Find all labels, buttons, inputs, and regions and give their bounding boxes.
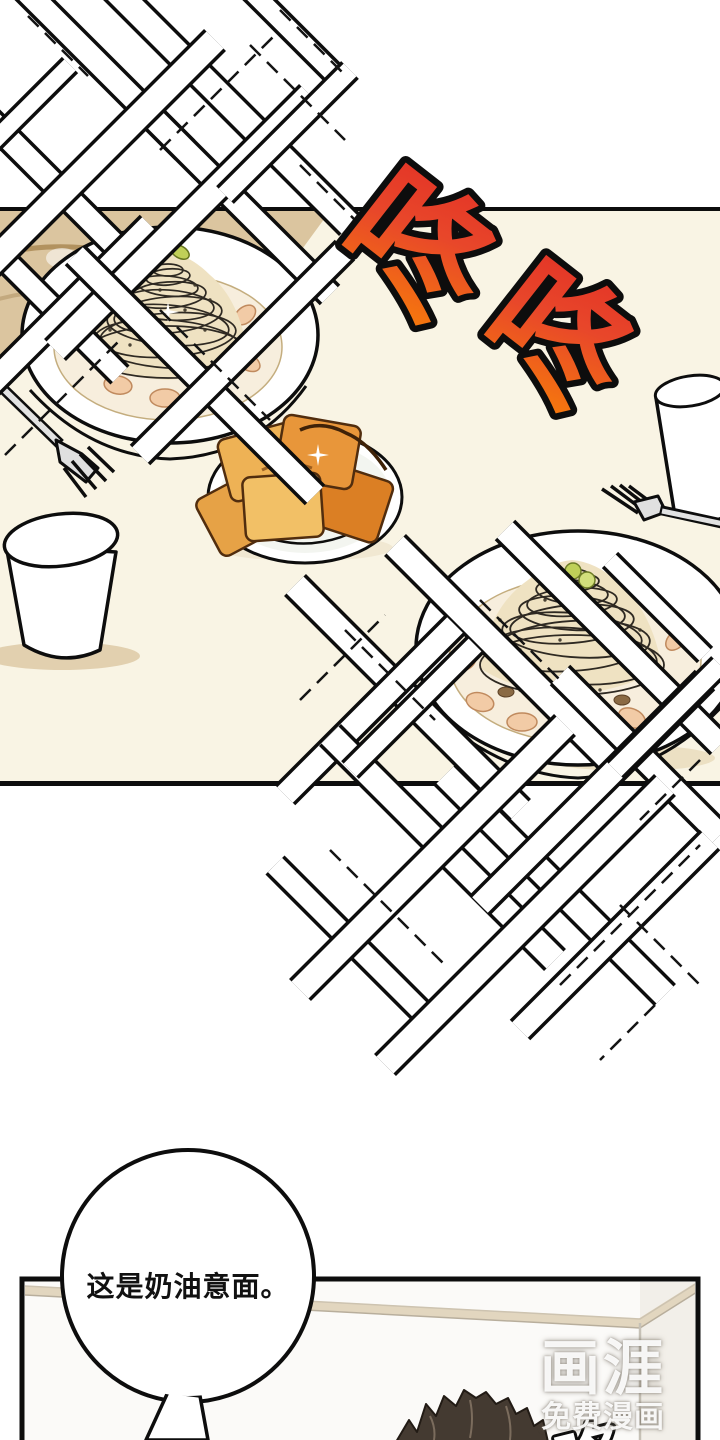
pepper-speck <box>108 328 111 331</box>
pepper-speck <box>183 308 186 311</box>
pepper-speck <box>638 628 641 631</box>
pepper-speck <box>208 298 211 301</box>
webtoon-page: 咚 咚 咚 这是奶油意面。 画涯 免费漫画 <box>0 0 720 1440</box>
pepper-speck <box>193 283 196 286</box>
speech-bubble-text: 这是奶油意面。 <box>66 1270 310 1304</box>
pepper-speck <box>203 328 206 331</box>
pepper-speck <box>158 288 161 291</box>
watermark-tagline: 免费漫画 <box>541 1392 665 1436</box>
pepper-speck <box>543 598 546 601</box>
pepper-speck <box>598 688 601 691</box>
pepper-speck <box>128 343 131 346</box>
comic-artwork: 咚 咚 咚 <box>0 0 720 1440</box>
speed-dash <box>600 1005 655 1060</box>
pepper-speck <box>558 638 561 641</box>
